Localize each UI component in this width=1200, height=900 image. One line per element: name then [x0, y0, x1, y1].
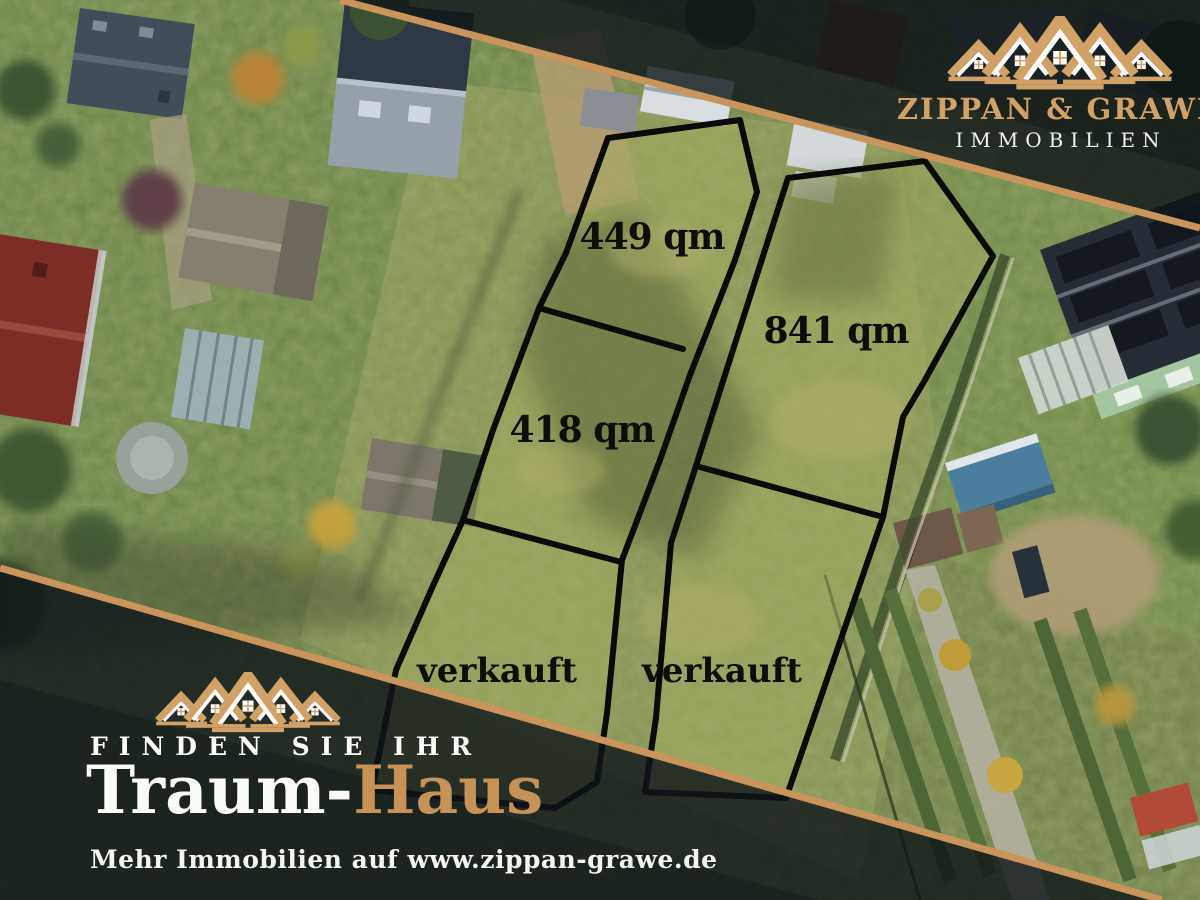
website-text: Mehr Immobilien auf www.zippan-grawe.de [90, 845, 718, 874]
conservatory [171, 328, 264, 429]
tagline-headline-gold: Haus [353, 751, 543, 829]
real-estate-poster: 449 qm 841 qm 418 qm verkauft verkauft [0, 0, 1200, 900]
company-subtitle: IMMOBILIEN [955, 128, 1166, 152]
tagline-headline: Traum-Haus [86, 757, 543, 823]
plot-label-841qm: 841 qm [764, 310, 909, 352]
house-dark-roof [67, 8, 195, 119]
plot-label-verkauft-right: verkauft [642, 651, 802, 691]
tagline-logo-roofs-icon [140, 672, 356, 734]
plot-label-449qm: 449 qm [580, 216, 725, 258]
company-logo-roofs-icon [947, 16, 1173, 92]
plot-label-418qm: 418 qm [510, 409, 655, 451]
plot-label-verkauft-left: verkauft [417, 651, 577, 691]
company-name: ZIPPAN & GRAWE [897, 92, 1200, 126]
tagline-headline-white: Traum- [86, 751, 353, 829]
